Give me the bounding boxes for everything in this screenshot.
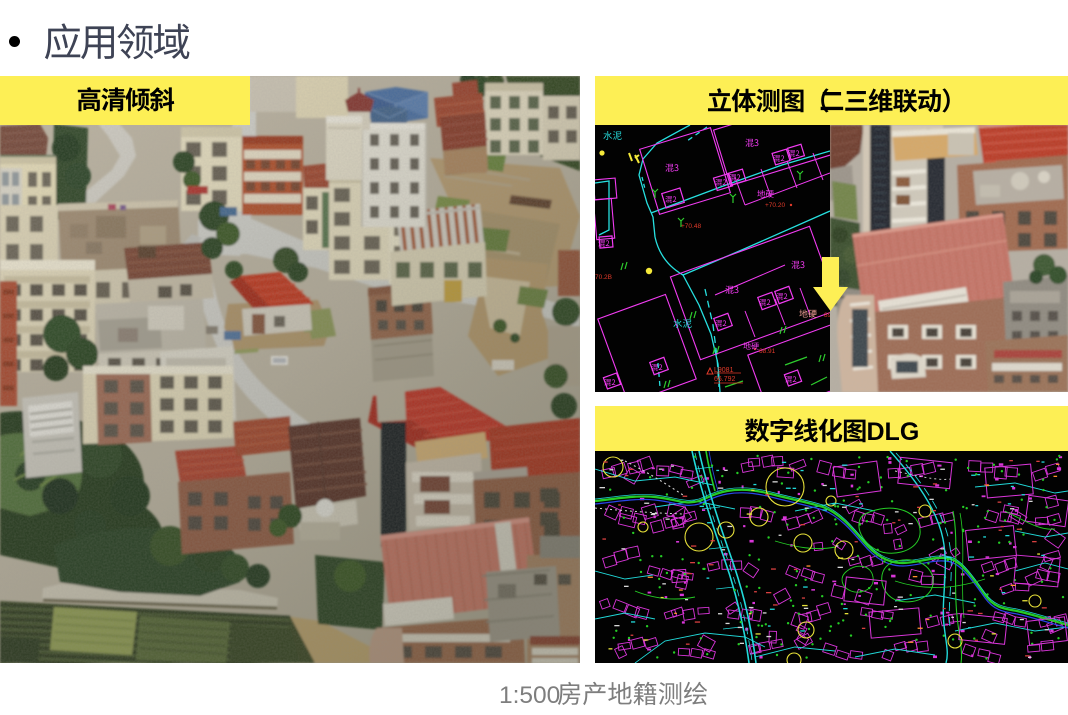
svg-text:DLG: DLG (867, 418, 920, 446)
svg-text:68.91: 68.91 (759, 348, 776, 355)
svg-text:70.2B: 70.2B (595, 274, 612, 281)
svg-text:66.792: 66.792 (714, 376, 736, 383)
svg-text:+70.20: +70.20 (765, 202, 785, 209)
svg-text:+70.48: +70.48 (681, 223, 701, 230)
svg-text:1:500: 1:500 (499, 682, 560, 709)
